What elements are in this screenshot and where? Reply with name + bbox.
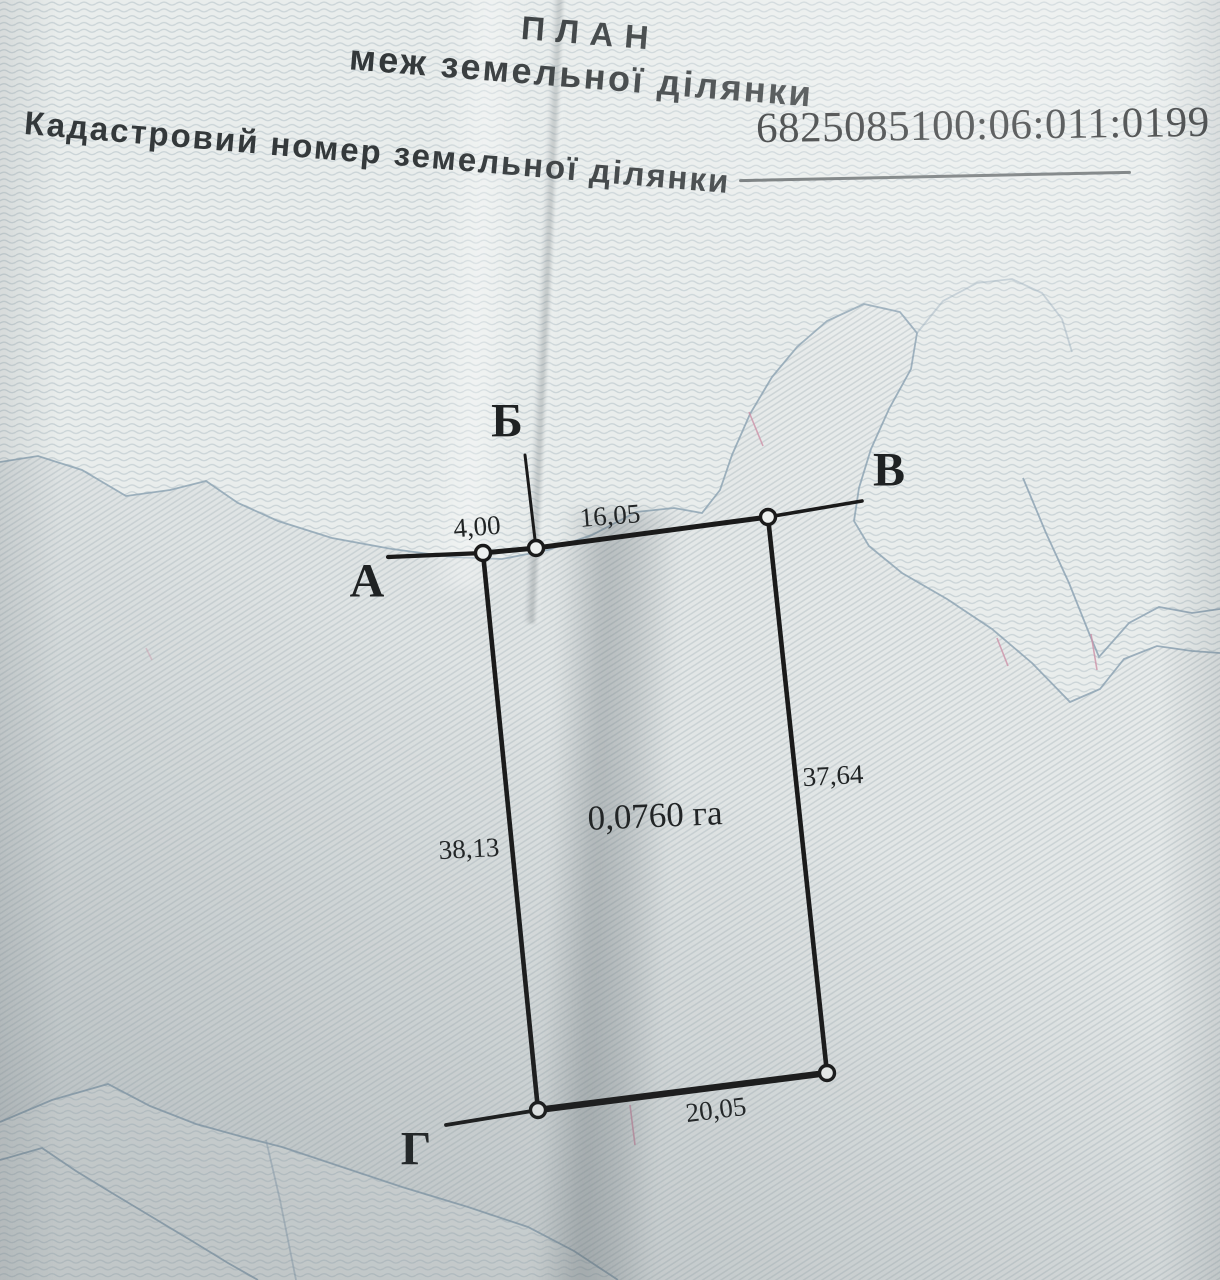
edge-v-corner — [768, 517, 827, 1073]
extension-line-g — [446, 1110, 538, 1125]
vertex-a — [476, 546, 491, 561]
vertex-bottom-right — [820, 1066, 835, 1081]
measurement-a-b: 4,00 — [452, 510, 502, 545]
extension-line-a — [388, 553, 483, 557]
parcel-area-label: 0,0760 га — [587, 793, 724, 839]
measurement-a-g: 38,13 — [438, 832, 500, 866]
measurement-v-corner: 37,64 — [802, 759, 864, 793]
scanned-land-plan-document: ПЛАН меж земельної ділянки Кадастровий н… — [0, 0, 1220, 1280]
parcel-boundary-lines — [388, 455, 862, 1125]
edge-g-corner — [538, 1073, 827, 1110]
point-label-v: В — [873, 443, 905, 498]
parcel-plan-drawing — [0, 0, 1220, 1280]
measurement-b-v: 16,05 — [579, 498, 642, 534]
edge-b-v — [536, 517, 768, 548]
point-label-b: Б — [491, 394, 523, 449]
point-label-a: А — [350, 554, 385, 609]
extension-line-v — [768, 501, 862, 517]
vertex-g — [531, 1103, 546, 1118]
vertex-v — [761, 510, 776, 525]
extension-line-b — [525, 455, 536, 548]
vertex-b — [529, 541, 544, 556]
point-label-g: Г — [401, 1122, 432, 1177]
